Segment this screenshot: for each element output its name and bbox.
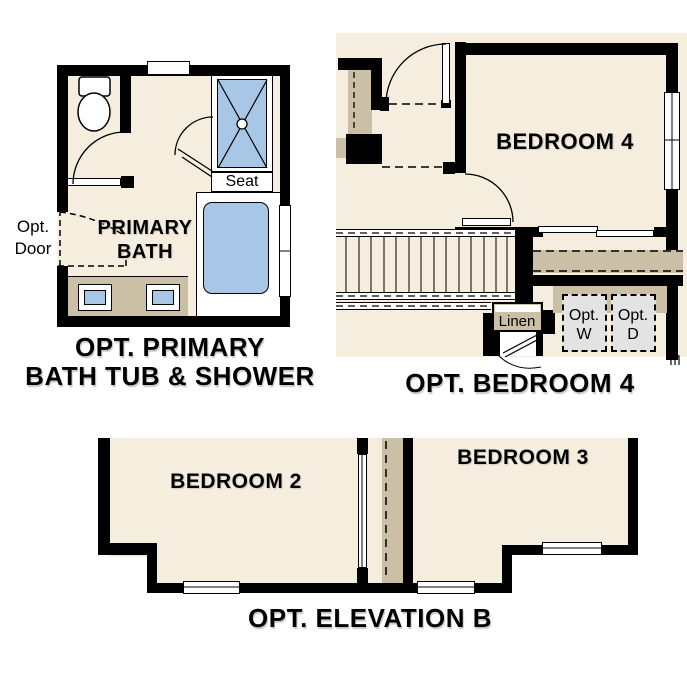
bedroom2-window-stub-top [357,438,368,454]
chase-strip [382,438,403,583]
stair-hall-wall [515,230,533,313]
opt-door-label: Opt. Door [15,216,52,260]
bedroom3-wall-right [628,438,638,547]
chase-floor [368,438,382,583]
wc-door-hinge-block [121,176,134,188]
wc-partition-wall [120,75,131,133]
hall-door-leaf [442,43,450,104]
bedroom2-window-bottom [183,581,240,594]
shower-seat-label: Seat [226,173,259,191]
bedroom4-door-leaf [462,218,511,226]
bedroom2-room-label: BEDROOM 2 [170,470,302,494]
bedroom4-room-label: BEDROOM 4 [496,129,634,155]
bedroom3-window-bottom [417,581,475,594]
hall-wall-stub-lower [443,162,455,174]
stair-rail-bottom1 [336,292,515,300]
bedroom4-window [664,92,680,190]
linen-label: Linen [499,313,536,330]
bedroom3-room-label: BEDROOM 3 [457,446,589,470]
bedroom3-floor-lower [413,545,512,583]
hall-closet [348,70,372,134]
hall-wall-stub-upper [380,97,389,111]
laundry-wall-bar [515,275,683,286]
stair-rail-top [336,229,515,237]
primary-bath-room-label: PRIMARY BATH [98,216,193,264]
opt-elevation-b-caption: OPT. ELEVATION B [248,604,492,633]
bath-wall-bottom [57,316,290,327]
bedroom2-window-stub-bottom [357,568,368,583]
floor-plan-sheet: PRIMARY BATH Opt. Door Seat OPT. PRIMARY… [0,0,687,687]
closet-wall-block [346,134,382,164]
closet-bypass-door-panel2 [596,230,654,237]
tub-window [279,205,291,297]
primary-bath-caption: OPT. PRIMARY BATH TUB & SHOWER [25,333,315,391]
hall-closet-sliver [336,138,346,158]
shower-pan [217,79,267,168]
bedroom4-wall-bottom-right [654,227,678,237]
sink-right-basin [152,290,174,305]
closet-bypass-door-panel1 [538,226,598,233]
opt-dryer-label: Opt. D [618,306,648,344]
bath-entry-header [147,61,190,75]
bedroom2-notch-cutout [98,557,147,593]
linen-door-opening [500,332,536,356]
bath-opt-door-opening [57,212,68,266]
opt-washer-label: Opt. W [569,306,599,344]
opt-bedroom4-caption: OPT. BEDROOM 4 [405,369,634,398]
stair-rail-bottom2 [336,302,491,310]
bedroom4-wall-top [455,43,678,55]
bedroom3-window-right [542,542,602,555]
laundry-shelf [533,250,683,273]
bedroom4-wall-right-low1 [666,237,678,250]
bath-wall-right-upper [280,65,290,205]
linen-door-swing [499,356,541,368]
bath-wall-right-lower [280,295,290,327]
bedroom4-wall-left [455,42,466,173]
wc-door-leaf [67,178,121,186]
bedroom2-window-side [358,454,367,568]
linen-cabinet-shelf [495,305,540,312]
linen-wall-right [543,310,555,334]
chase-wall [403,438,413,593]
bathtub [203,202,269,294]
bedroom3-step-wall [502,545,512,593]
bedroom2-wall-left [98,438,110,545]
bedroom4-wall-right-low2 [666,286,678,360]
bath-wall-left-upper [57,65,68,212]
sink-left-basin [84,290,106,305]
bedroom4-wall-right-upper [666,43,678,93]
